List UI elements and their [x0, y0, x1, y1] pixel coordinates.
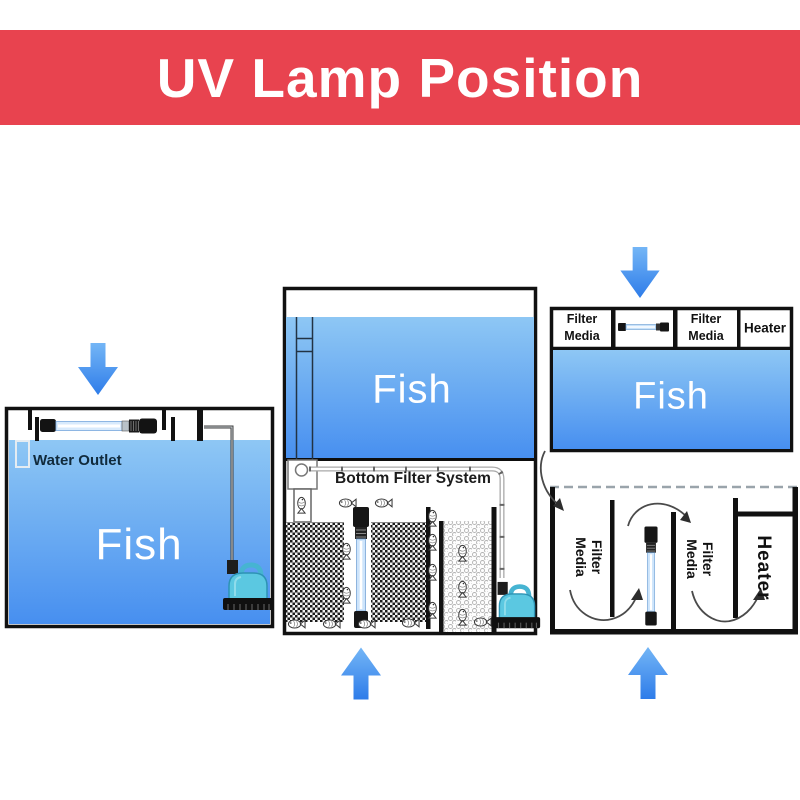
filter-media-label-vertical: Filter Media: [573, 537, 605, 577]
fish-label: Fish: [633, 376, 709, 419]
fitting-circle: [296, 464, 308, 476]
filter-media-line2: Media: [688, 328, 723, 345]
tank1-diagram: [7, 343, 274, 627]
filter-media-line1: Filter: [700, 539, 716, 579]
filter-media-line2: Media: [573, 537, 589, 577]
bottom-filter-system-label: Bottom Filter System: [335, 470, 491, 488]
up-arrow-icon: [628, 647, 668, 699]
fish-label: Fish: [372, 368, 452, 413]
up-arrow-icon: [341, 648, 381, 700]
down-arrow-icon: [620, 247, 659, 298]
filter-media-line1: Filter: [589, 537, 605, 577]
infographic-page: UV Lamp Position: [0, 0, 800, 800]
uv-lamp-vertical-icon: [644, 527, 657, 626]
filter-media-line1: Filter: [688, 311, 723, 328]
filter-media-bio: [443, 521, 492, 632]
down-arrow-icon: [78, 343, 118, 395]
filter-media-line2: Media: [564, 328, 599, 345]
fish-label: Fish: [95, 520, 182, 570]
tank2-diagram: [285, 289, 541, 700]
filter-media-line1: Filter: [564, 311, 599, 328]
filter-media-label: Filter Media: [688, 311, 723, 345]
filter-media-mesh: [286, 522, 344, 622]
filter-media-line2: Media: [684, 539, 700, 579]
filter-media-label: Filter Media: [564, 311, 599, 345]
filter-media-label-vertical: Filter Media: [684, 539, 716, 579]
water-outlet-label: Water Outlet: [33, 452, 122, 469]
filter-media-mesh: [371, 522, 427, 622]
heater-label: Heater: [744, 321, 786, 336]
heater-label-vertical: Heater: [752, 535, 774, 600]
